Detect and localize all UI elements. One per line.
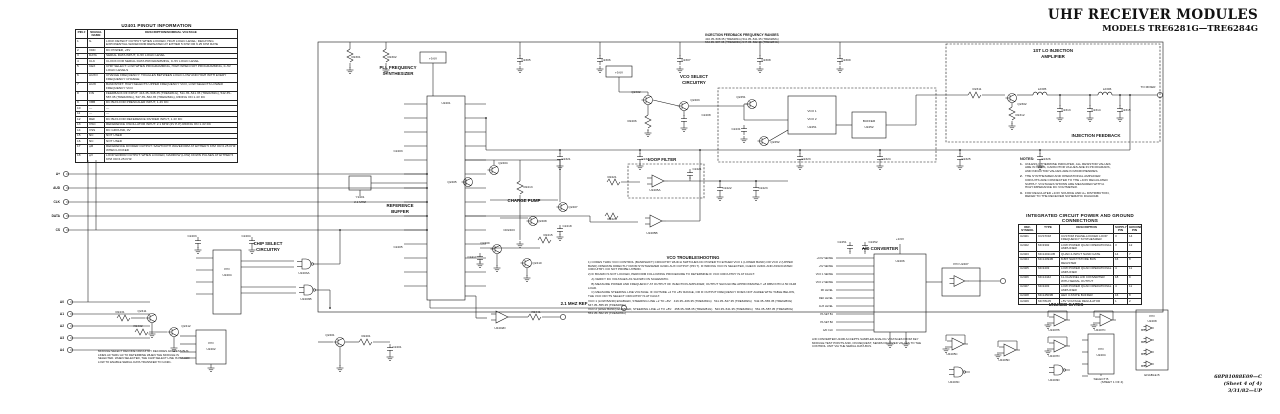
note-item: 1.UNLESS OTHERWISE INDICATED, ALL RESIST…: [1020, 163, 1112, 174]
component-label: A4: [60, 348, 64, 352]
wire: [1010, 99, 1015, 102]
module-select-note: MODULE SELECT DECODE CIRCUITRY DECODES A…: [98, 350, 194, 364]
table-cell: 4: [1114, 284, 1128, 293]
table-cell: LOW POWER QUAD OPERATIONAL AMPLIFIER: [1060, 284, 1114, 293]
component-label: U2403B: [300, 297, 311, 301]
table-row: U2409MC78L05+5V VOLTAGE REGULATOR12: [1019, 299, 1142, 305]
component-label: Q2409: [480, 241, 490, 245]
table-row: 1fLLOCK DETECT OUTPUT: WHEN LOCKED, HIGH…: [76, 39, 238, 48]
sheet-title: UHF RECEIVER MODULES: [1048, 7, 1258, 23]
component-label: C2307: [681, 58, 690, 62]
component-label: 1ST LO INJECTION: [1033, 48, 1073, 53]
table-cell: 8: [1128, 257, 1142, 266]
component-label: C2306: [601, 58, 610, 62]
table-cell: U2404: [1019, 257, 1037, 266]
table-cell: U2405: [1019, 266, 1037, 275]
table-cell: MC3302: [1037, 243, 1060, 252]
vco-troubleshooting-panel: VCO TROUBLESHOOTING 1) CODES THRU VCO CO…: [588, 256, 798, 317]
wire: [646, 96, 651, 99]
injection-ranges-panel: INJECTION FEEDBACK FREQUENCY RANGES 416.…: [686, 34, 798, 45]
component-label: U2401: [441, 101, 450, 105]
table-cell: CUSTOM PHASE-LOCKED LOOP FREQUENCY SYNTH…: [1060, 234, 1114, 243]
pinout-table-title: U2401 PINOUT INFORMATION: [75, 23, 238, 28]
table-cell: FEEDBACK RF INPUT: 416.35–508.35 (TRE628…: [105, 91, 238, 100]
symbol: [1146, 349, 1152, 355]
table-cell: 5: [76, 64, 88, 73]
component-label: P/O U2407: [953, 262, 969, 266]
symbol: [528, 314, 541, 320]
schematic-sheet: A+AUDCLKDATACSA0A1A2A3A4+9.6V SENSE+5V S…: [0, 0, 1280, 414]
troubleshooting-line: C) MEASURE STEERING LINE VOLTAGE. IF OUT…: [588, 291, 798, 298]
component-label: CIRCUITRY: [256, 247, 280, 252]
component-label: B4: [1141, 364, 1145, 368]
component-label: INJECTION FEEDBACK: [1071, 133, 1121, 138]
wire: [762, 137, 767, 140]
symbol: [517, 181, 523, 194]
component-label: AUX LEVEL: [819, 304, 834, 308]
table-cell: 16: [1114, 257, 1128, 266]
component-label: VCO 1 SENSE: [816, 272, 834, 276]
component-label: R2424: [607, 217, 616, 221]
component-label: C2401: [392, 345, 401, 349]
terminal: [560, 314, 565, 319]
component-label: Q2407: [568, 205, 578, 209]
col-header: DESCRIPTION/NOMINAL VOLTAGE: [105, 30, 238, 39]
component-label: 2.1 MHZ: [354, 200, 366, 204]
table-cell: MC3403: [1037, 284, 1060, 293]
component-label: +9.6V: [896, 237, 905, 241]
component-label: C2309: [841, 58, 850, 62]
gate-bubble: [313, 289, 315, 291]
table-cell: LOOP ERROR OUTPUT: WHEN LOCKED, NARROW (…: [105, 153, 238, 162]
symbol: [1054, 340, 1066, 352]
pinout-table: PIN #SIGNAL NAMEDESCRIPTION/NOMINAL VOLT…: [75, 29, 238, 163]
table-cell: 12: [1128, 243, 1142, 252]
table-cell: 1: [1114, 299, 1128, 305]
component-label: CHIP SELECT: [254, 241, 283, 246]
component-label: R2406: [627, 119, 636, 123]
component-label: CIRCUITRY: [682, 80, 706, 85]
component-label: TO MIXER: [1141, 85, 1157, 89]
table-cell: AUXI: [88, 82, 105, 91]
wire: [646, 101, 651, 104]
component-label: U2405C: [946, 352, 958, 356]
component-label: REF LEVEL: [819, 296, 834, 300]
table-cell: 18: [76, 153, 88, 162]
component-label: C2308: [761, 58, 770, 62]
component-label: C2451: [837, 240, 846, 244]
table-row: 8FINFEEDBACK RF INPUT: 416.35–508.35 (TR…: [76, 91, 238, 100]
component-label: A+: [56, 172, 60, 176]
component-label: DATA: [52, 214, 61, 218]
ic-box: [942, 268, 980, 296]
adc-note: A/D CONVERTER U2406 ACCEPTS SAMPLED ANAL…: [812, 338, 928, 349]
component-label: U2404: [222, 273, 231, 277]
table-cell: REFERENCE DIVIDER OUTPUT: SAWTOOTH WAVEF…: [105, 144, 238, 153]
col-header: TYPE: [1037, 225, 1060, 234]
wire: [150, 314, 155, 317]
component-label: VCO 2: [807, 117, 817, 121]
wire: [750, 105, 755, 108]
troubleshooting-line: B) MEASURE POWER AND FREQUENCY AT OUTPUT…: [588, 283, 798, 290]
ic-box: [874, 254, 926, 332]
symbol: [968, 92, 981, 98]
symbol: [1009, 107, 1015, 120]
table-cell: fL: [88, 39, 105, 48]
table-cell: 7: [76, 82, 88, 91]
symbol: [304, 285, 313, 295]
table-cell: +5V VOLTAGE REGULATOR: [1060, 299, 1114, 305]
wire: [653, 100, 679, 106]
table-cell: 4: [1114, 266, 1128, 275]
component-label: U2402D: [494, 326, 506, 330]
component-label: C2404: [241, 234, 250, 238]
table-cell: 11: [1128, 266, 1142, 275]
component-label: R2311: [973, 87, 982, 91]
table-cell: 17: [76, 144, 88, 153]
component-label: Q2404: [498, 161, 508, 165]
component-label: AMPLIFIER: [1041, 54, 1065, 59]
component-label: B3: [1141, 352, 1145, 356]
table-cell: 3: [1114, 234, 1128, 243]
col-header: SIGNAL NAME: [88, 30, 105, 39]
troubleshooting-line: VCO 2 (HIGH BAND) ENABLED, STEERING LINE…: [588, 308, 798, 315]
wire: [172, 333, 177, 336]
component-label: U2403D: [1048, 378, 1060, 382]
junction-dot: [426, 187, 428, 189]
table-cell: 11: [1128, 284, 1142, 293]
table-cell: LOW POWER QUAD OPERATIONAL AMPLIFIER: [1060, 243, 1114, 252]
component-label: C2421: [692, 167, 701, 171]
component-label: C2323: [801, 157, 810, 161]
component-label: BUFFER: [863, 119, 876, 123]
table-cell: LOW POWER QUAD OPERATIONAL AMPLIFIER: [1060, 266, 1114, 275]
component-label: R2431: [115, 310, 124, 314]
wire: [561, 203, 566, 206]
component-label: C2313: [1061, 108, 1070, 112]
component-label: (SHEET 1 OF 4): [1101, 380, 1124, 384]
component-label: LOOP FILTER: [648, 157, 677, 162]
component-label: CS: [56, 228, 60, 232]
component-label: +5V SENSE: [819, 264, 833, 268]
junction-dot: [1129, 94, 1131, 96]
table-cell: 11-CHANNEL A/D CONVERTER WITH SERIAL OUT…: [1060, 275, 1114, 284]
component-label: U2404: [1096, 353, 1105, 357]
component-label: C2408: [701, 113, 710, 117]
ic-box: [427, 96, 465, 300]
component-label: U2405A: [649, 188, 661, 192]
table-row: 17φRREFERENCE DIVIDER OUTPUT: SAWTOOTH W…: [76, 144, 238, 153]
wire: [682, 102, 687, 105]
component-label: L2305: [1038, 87, 1047, 91]
table-cell: 8-BIT SHIFT/STORE BUS REGISTER: [1060, 257, 1114, 266]
table-row: U2405MC3403LOW POWER QUAD OPERATIONAL AM…: [1019, 266, 1142, 275]
junction-dot: [755, 180, 757, 182]
component-label: R2302: [387, 55, 396, 59]
component-label: +9.6V: [429, 57, 438, 61]
wire: [525, 264, 530, 267]
table-cell: 6: [76, 73, 88, 82]
component-label: REFERENCE: [386, 203, 413, 208]
symbol: [1100, 314, 1112, 326]
symbol: [607, 179, 620, 185]
symbol: [1033, 92, 1047, 95]
table-cell: 1: [76, 39, 88, 48]
footer-block: 68P81088E09—C (Sheet 4 of 4) 3/31/82—UP: [1214, 374, 1262, 395]
symbol: [135, 329, 148, 335]
ic-box: [213, 250, 241, 314]
component-label: PA SET B1: [820, 312, 833, 316]
junction-dot: [426, 201, 428, 203]
junction-dot: [426, 229, 428, 231]
component-label: BUFFER: [391, 209, 410, 214]
troubleshooting-line: 1) CODES THRU VCO CONTROL (BANDSHIFT) CI…: [588, 261, 798, 272]
table-row: U2407MC3403LOW POWER QUAD OPERATIONAL AM…: [1019, 284, 1142, 293]
table-cell: CHANGE FREQUENCY: TOGGLES BETWEEN LOGIC …: [105, 73, 238, 82]
col-header: DESCRIPTION: [1060, 225, 1114, 234]
footer-date: 3/31/82—UP: [1214, 388, 1262, 395]
component-label: Q2452: [770, 140, 780, 144]
component-label: R2401: [361, 334, 370, 338]
symbol: [652, 175, 664, 187]
wire: [682, 107, 687, 110]
symbol: [1054, 365, 1063, 375]
symbol: [302, 259, 311, 269]
component-label: R2415: [543, 233, 552, 237]
table-row: U2404MC14094B8-BIT SHIFT/STORE BUS REGIS…: [1019, 257, 1142, 266]
component-label: A0: [60, 300, 64, 304]
symbol: [1098, 92, 1112, 95]
component-label: Q2302: [1017, 102, 1027, 106]
component-label: SYNTHESIZER: [383, 71, 415, 76]
ic-table-title: INTEGRATED CIRCUIT POWER AND GROUND CONN…: [1018, 213, 1142, 223]
junction-dot: [485, 117, 487, 119]
wire: [492, 171, 497, 174]
junction-dot: [719, 180, 721, 182]
junction-dot: [426, 173, 428, 175]
component-label: C2305: [521, 58, 530, 62]
symbol: [952, 338, 964, 350]
table-cell: U2402: [1019, 243, 1037, 252]
table-row: 18φVLOOP ERROR OUTPUT: WHEN LOCKED, NARR…: [76, 153, 238, 162]
table-row: U2406MC1444211-CHANNEL A/D CONVERTER WIT…: [1019, 275, 1142, 284]
table-cell: BANDSHIFT: HIGH SELECTS UPPER FREQUENCY …: [105, 82, 238, 91]
component-label: C2321: [561, 157, 570, 161]
wire: [466, 178, 471, 181]
component-label: U2403C: [948, 380, 960, 384]
component-label: B1: [1141, 328, 1145, 332]
wire: [466, 183, 471, 186]
component-label: B2: [1141, 340, 1145, 344]
ic-table-panel: INTEGRATED CIRCUIT POWER AND GROUND CONN…: [1018, 213, 1142, 305]
component-label: U2402: [206, 347, 215, 351]
table-cell: 9: [1128, 275, 1142, 284]
component-label: C2325: [961, 157, 970, 161]
symbol: [1054, 314, 1066, 326]
symbol: [1146, 361, 1152, 367]
table-row: U2402MC3302LOW POWER QUAD OPERATIONAL AM…: [1019, 243, 1142, 252]
terminal: [1000, 278, 1005, 283]
table-cell: 8: [76, 91, 88, 100]
table-cell: U2406: [1019, 275, 1037, 284]
table-row: U2401CUSTOMCUSTOM PHASE-LOCKED LOOP FREQ…: [1019, 234, 1142, 243]
component-label: RF LEVEL: [821, 288, 834, 292]
table-cell: LOCK DETECT OUTPUT: WHEN LOCKED, HIGH LO…: [105, 39, 238, 48]
table-cell: CHIP SELECT: LOW WHEN PROGRAMMING, HIGH …: [105, 64, 238, 73]
wire: [150, 319, 155, 322]
component-label: R2441: [531, 310, 540, 314]
table-cell: CUSTOM: [1037, 234, 1060, 243]
component-label: U2407B: [1048, 328, 1059, 332]
vco-troubleshooting-title: VCO TROUBLESHOOTING: [588, 256, 798, 260]
wire: [492, 166, 497, 169]
injection-ranges-line2: 542.35–587.35 (TRE6283G) 547.35–562.35 (…: [686, 41, 798, 45]
wire: [495, 245, 500, 248]
component-label: C2422: [722, 186, 731, 190]
component-label: CHARGE PUMP: [508, 198, 541, 203]
component-label: CLK: [53, 200, 60, 204]
component-label: C2403: [393, 149, 402, 153]
title-block: UHF RECEIVER MODULES MODELS TRE6281G—TRE…: [1048, 7, 1258, 34]
component-label: +9.6V: [615, 71, 624, 75]
component-label: A3: [60, 336, 64, 340]
component-label: U2405B: [646, 231, 657, 235]
component-label: ENABLE B: [1144, 373, 1159, 377]
symbol: [538, 237, 551, 243]
wire: [1010, 94, 1015, 97]
component-label: R2312: [1015, 113, 1024, 117]
note-item: 3.FOR REGULATED +9.6V SOURCE AND A+ DIST…: [1020, 192, 1112, 199]
wire: [338, 338, 343, 341]
note-item: 2.THE SYNTHESIZER AND OPERATIONAL AMPLIF…: [1020, 175, 1112, 190]
component-label: A/D CONVERTER: [862, 246, 899, 251]
component-label: P/O: [1149, 314, 1155, 318]
component-label: A/D CLK: [823, 328, 833, 332]
component-label: C2315: [1121, 108, 1130, 112]
junction-dot: [339, 229, 341, 231]
component-label: A2: [60, 324, 64, 328]
table-cell: φV: [88, 153, 105, 162]
wire: [762, 142, 767, 145]
junction-dot: [329, 307, 331, 309]
component-label: Q2408: [537, 219, 547, 223]
component-label: U2405D: [998, 358, 1010, 362]
gate-bubble: [963, 371, 965, 373]
component-label: U2408: [1147, 319, 1156, 323]
component-label: C2322: [641, 157, 650, 161]
table-row: 5CEXCHIP SELECT: LOW WHEN PROGRAMMING, H…: [76, 64, 238, 73]
component-label: U2407D: [1048, 354, 1060, 358]
component-label: VCO 2 SENSE: [816, 280, 834, 284]
component-label: Q2401: [325, 333, 335, 337]
sheet-models: MODELS TRE6281G—TRE6284G: [1048, 24, 1258, 34]
component-label: C2452: [868, 240, 877, 244]
component-label: U2407C: [1094, 328, 1106, 332]
gate-bubble: [1063, 369, 1065, 371]
table-cell: MC14094B: [1037, 257, 1060, 266]
wire: [338, 343, 343, 346]
component-label: +9.6V SENSE: [817, 256, 834, 260]
table-cell: 14: [1128, 234, 1142, 243]
component-label: U2452: [864, 125, 873, 129]
table-row: 6AUXOCHANGE FREQUENCY: TOGGLES BETWEEN L…: [76, 73, 238, 82]
wire: [531, 222, 536, 225]
component-label: L2306: [1103, 87, 1112, 91]
component-label: P/O: [1098, 347, 1104, 351]
component-label: C2417: [467, 255, 476, 259]
gate-bubble: [311, 263, 313, 265]
symbol: [954, 276, 965, 287]
component-label: A1: [60, 312, 64, 316]
col-header: REF. SYMBOL: [1019, 225, 1037, 234]
symbol: [645, 115, 651, 128]
notes-list: 1.UNLESS OTHERWISE INDICATED, ALL RESIST…: [1020, 163, 1112, 199]
table-cell: 2: [1128, 299, 1142, 305]
wire: [531, 217, 536, 220]
component-label: 2.1 MHZ REF: [561, 301, 588, 306]
table-cell: FIN: [88, 91, 105, 100]
component-label: U2403A: [298, 271, 310, 275]
table-cell: φR: [88, 144, 105, 153]
symbol: [1146, 325, 1152, 331]
component-label: Q2405: [447, 180, 457, 184]
component-label: C2324: [881, 157, 890, 161]
pinout-table-panel: U2401 PINOUT INFORMATION PIN #SIGNAL NAM…: [75, 23, 238, 163]
table-cell: MC78L05: [1037, 299, 1060, 305]
ic-power-ground-table: REF. SYMBOLTYPEDESCRIPTIONSUPPLY PINGROU…: [1018, 224, 1142, 305]
table-cell: 18: [1114, 275, 1128, 284]
component-label: C2403: [187, 234, 196, 238]
col-header: SUPPLY PIN: [1114, 225, 1128, 234]
component-label: C2423: [758, 186, 767, 190]
symbol: [1004, 344, 1016, 356]
col-header: GROUND PIN: [1128, 225, 1142, 234]
junction-dot: [426, 215, 428, 217]
component-label: Q2412: [181, 324, 191, 328]
table-cell: MC3403: [1037, 266, 1060, 275]
component-label: VCO 1: [807, 109, 817, 113]
symbol: [496, 311, 508, 323]
component-label: R2301: [351, 55, 360, 59]
notes-panel: NOTES: 1.UNLESS OTHERWISE INDICATED, ALL…: [1020, 158, 1112, 201]
component-label: P/O: [224, 267, 230, 271]
component-label: CR2403: [503, 228, 515, 232]
component-label: Y2401: [356, 195, 365, 199]
footer-part-number: 68P81088E09—C: [1214, 374, 1262, 381]
symbol: [650, 215, 662, 227]
symbol: [1146, 337, 1152, 343]
table-cell: 3: [1114, 243, 1128, 252]
table-cell: U2401: [1019, 234, 1037, 243]
component-label: C2405: [393, 245, 402, 249]
component-label: Q2410: [532, 261, 542, 265]
symbol: [117, 315, 130, 321]
component-label: PLL FREQUENCY: [380, 65, 417, 70]
symbol: [359, 339, 372, 345]
table-cell: CEX: [88, 64, 105, 73]
component-label: R2421: [607, 175, 616, 179]
component-label: R2413: [523, 185, 532, 189]
component-label: VCO SELECT: [680, 74, 708, 79]
component-label: P/O: [208, 341, 214, 345]
wire: [750, 100, 755, 103]
component-label: U2451: [807, 125, 816, 129]
troubleshooting-line: VCO 1 (LOW BAND) ENABLED, STEERING LINE …: [588, 300, 798, 307]
component-label: U2406: [895, 259, 904, 263]
table-cell: U2409: [1019, 299, 1037, 305]
wire: [561, 208, 566, 211]
component-label: R2432: [133, 324, 142, 328]
